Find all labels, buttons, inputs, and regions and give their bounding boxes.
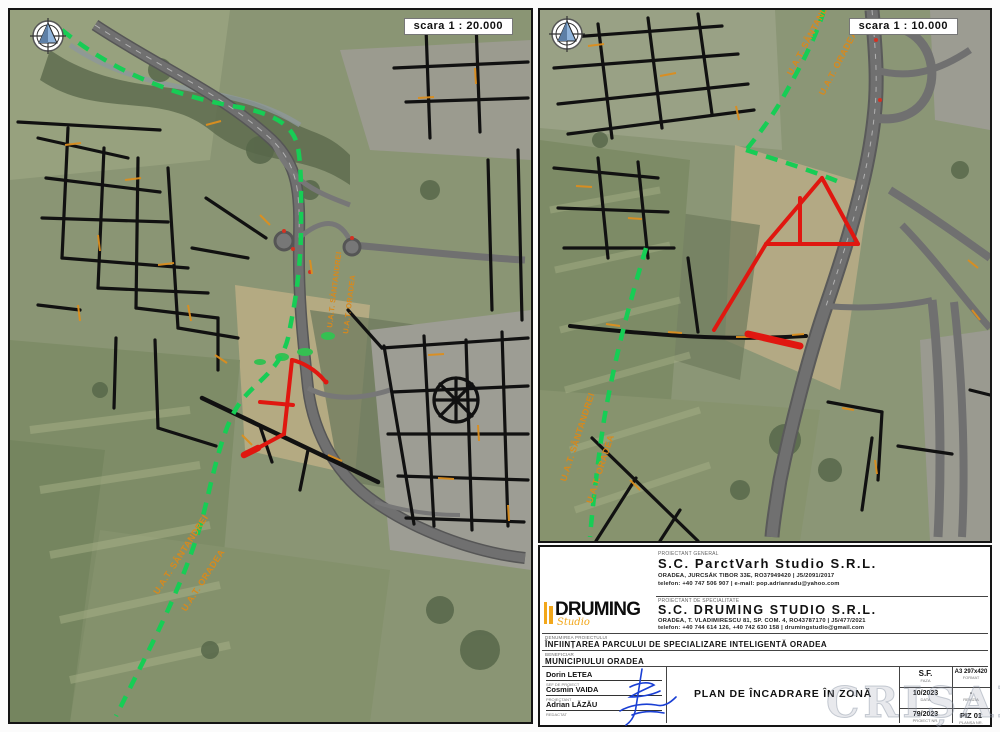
druming-logo: DRUMING Studio bbox=[544, 599, 656, 631]
divider bbox=[952, 708, 990, 709]
meta-project-no: 79/2023 PROIECT NR. bbox=[899, 711, 952, 723]
sheet-no-value: PIZ 01 bbox=[952, 711, 990, 720]
drawing-title: PLAN DE ÎNCADRARE ÎN ZONĂ bbox=[668, 688, 898, 700]
general-designer-name: S.C. ParctVarh Studio S.R.L. bbox=[658, 556, 877, 571]
title-block: PROIECTANT GENERAL S.C. ParctVarh Studio… bbox=[538, 545, 992, 727]
meta-sheet-no: PIZ 01 PLANȘA NR. bbox=[952, 711, 990, 725]
meta-format: A3 297x420 FORMAT bbox=[952, 669, 990, 680]
date-label: DATA bbox=[899, 697, 952, 702]
general-designer-address: ORADEA, JURCSÁK TIBOR 33E, RO37949420 | … bbox=[658, 573, 834, 579]
general-designer-contact: telefon: +40 747 506 907 | e-mail: pop.a… bbox=[658, 581, 840, 587]
druming-logo-sub: Studio bbox=[557, 617, 590, 628]
roundabout bbox=[275, 232, 293, 250]
specialty-designer-contact: telefon: +40 744 614 126, +40 742 630 15… bbox=[658, 625, 864, 631]
date-value: 10/2023 bbox=[899, 690, 952, 697]
project-no-value: 79/2023 bbox=[899, 711, 952, 718]
map-panel-1-20000: U.A.T. SÂNTANDREI U.A.T. ORADEA U.A.T. S… bbox=[8, 8, 533, 724]
meta-phase: S.F. FAZA bbox=[899, 669, 952, 683]
divider bbox=[542, 633, 988, 634]
divider bbox=[542, 650, 988, 651]
aerial-map-left: U.A.T. SÂNTANDREI U.A.T. ORADEA U.A.T. S… bbox=[10, 10, 531, 722]
phase-value: S.F. bbox=[899, 669, 952, 678]
specialty-designer-address: ORADEA, T. VLADIMIRESCU 81, SP. COM. 4, … bbox=[658, 618, 866, 624]
project-no-label: PROIECT NR. bbox=[899, 718, 952, 723]
project-name-value: ÎNFIINȚAREA PARCULUI DE SPECIALIZARE INT… bbox=[545, 640, 827, 649]
druming-logo-bars-icon bbox=[544, 602, 553, 624]
revision-label: REVIZIA bbox=[952, 697, 990, 702]
format-label: FORMAT bbox=[952, 675, 990, 680]
scale-badge-left: scara 1 : 20.000 bbox=[404, 18, 513, 35]
sheet-no-label: PLANȘA NR. bbox=[952, 720, 990, 725]
divider bbox=[899, 687, 952, 688]
beneficiary-value: MUNICIPIULUI ORADEA bbox=[545, 657, 644, 666]
meta-date: 10/2023 DATA bbox=[899, 690, 952, 702]
divider bbox=[952, 687, 990, 688]
map-panel-1-10000: U.A.T. SÂNTANDREI U.A.T. ORADEA U.A.T. S… bbox=[538, 8, 992, 543]
meta-revision: - REVIZIA bbox=[952, 690, 990, 702]
revision-value: - bbox=[952, 690, 990, 697]
roundabout bbox=[344, 239, 360, 255]
divider bbox=[899, 708, 952, 709]
scale-badge-right: scara 1 : 10.000 bbox=[849, 18, 958, 35]
phase-label: FAZA bbox=[899, 678, 952, 683]
specialty-designer-name: S.C. DRUMING STUDIO S.R.L. bbox=[658, 603, 877, 617]
divider bbox=[542, 666, 988, 667]
divider bbox=[656, 596, 988, 597]
aerial-background bbox=[10, 10, 531, 722]
aerial-map-right: U.A.T. SÂNTANDREI U.A.T. ORADEA U.A.T. S… bbox=[540, 10, 990, 541]
